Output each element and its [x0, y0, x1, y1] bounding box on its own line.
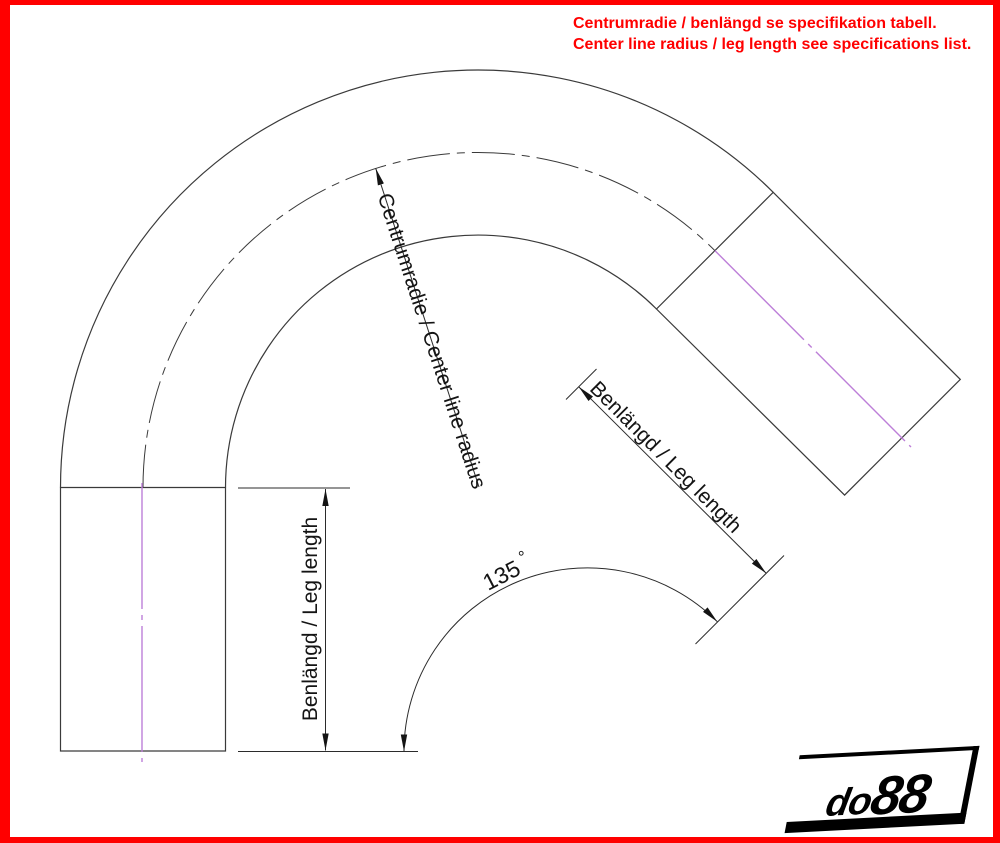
specification-note-line2: Center line radius / leg length see spec…: [573, 34, 971, 55]
right-leg-center-line: [715, 251, 911, 447]
frame-border-top: [0, 0, 1000, 5]
angle-dimension-label: 135°: [477, 547, 535, 596]
radius-dimension-label: Centrumradie / Center line radius: [373, 190, 490, 491]
logo-text-do: do: [823, 786, 874, 820]
drawing-sheet: Centrumradie / Center line radius Benlän…: [0, 0, 1000, 843]
specification-note-line1: Centrumradie / benlängd se specifikation…: [573, 13, 971, 34]
frame-border-bottom: [0, 837, 1000, 843]
degree-symbol: °: [516, 547, 531, 567]
angle-value: 135: [478, 555, 524, 596]
angle-dimension-arc: [404, 568, 717, 752]
bend-drawing: Centrumradie / Center line radius Benlän…: [0, 0, 1000, 843]
frame-border-left: [0, 0, 10, 843]
right-leg-outline: [657, 192, 961, 495]
right-leg-extension-lower: [696, 556, 785, 645]
logo-text-88: 88: [868, 772, 932, 818]
frame-border-right: [993, 0, 1000, 843]
left-leg-dimension-label: Benlängd / Leg length: [299, 517, 322, 721]
right-leg-dimension-label: Benlängd / Leg length: [585, 377, 746, 538]
left-leg-outline: [61, 488, 226, 752]
do88-logo: do 88: [785, 746, 980, 833]
specification-note: Centrumradie / benlängd se specifikation…: [573, 13, 971, 55]
